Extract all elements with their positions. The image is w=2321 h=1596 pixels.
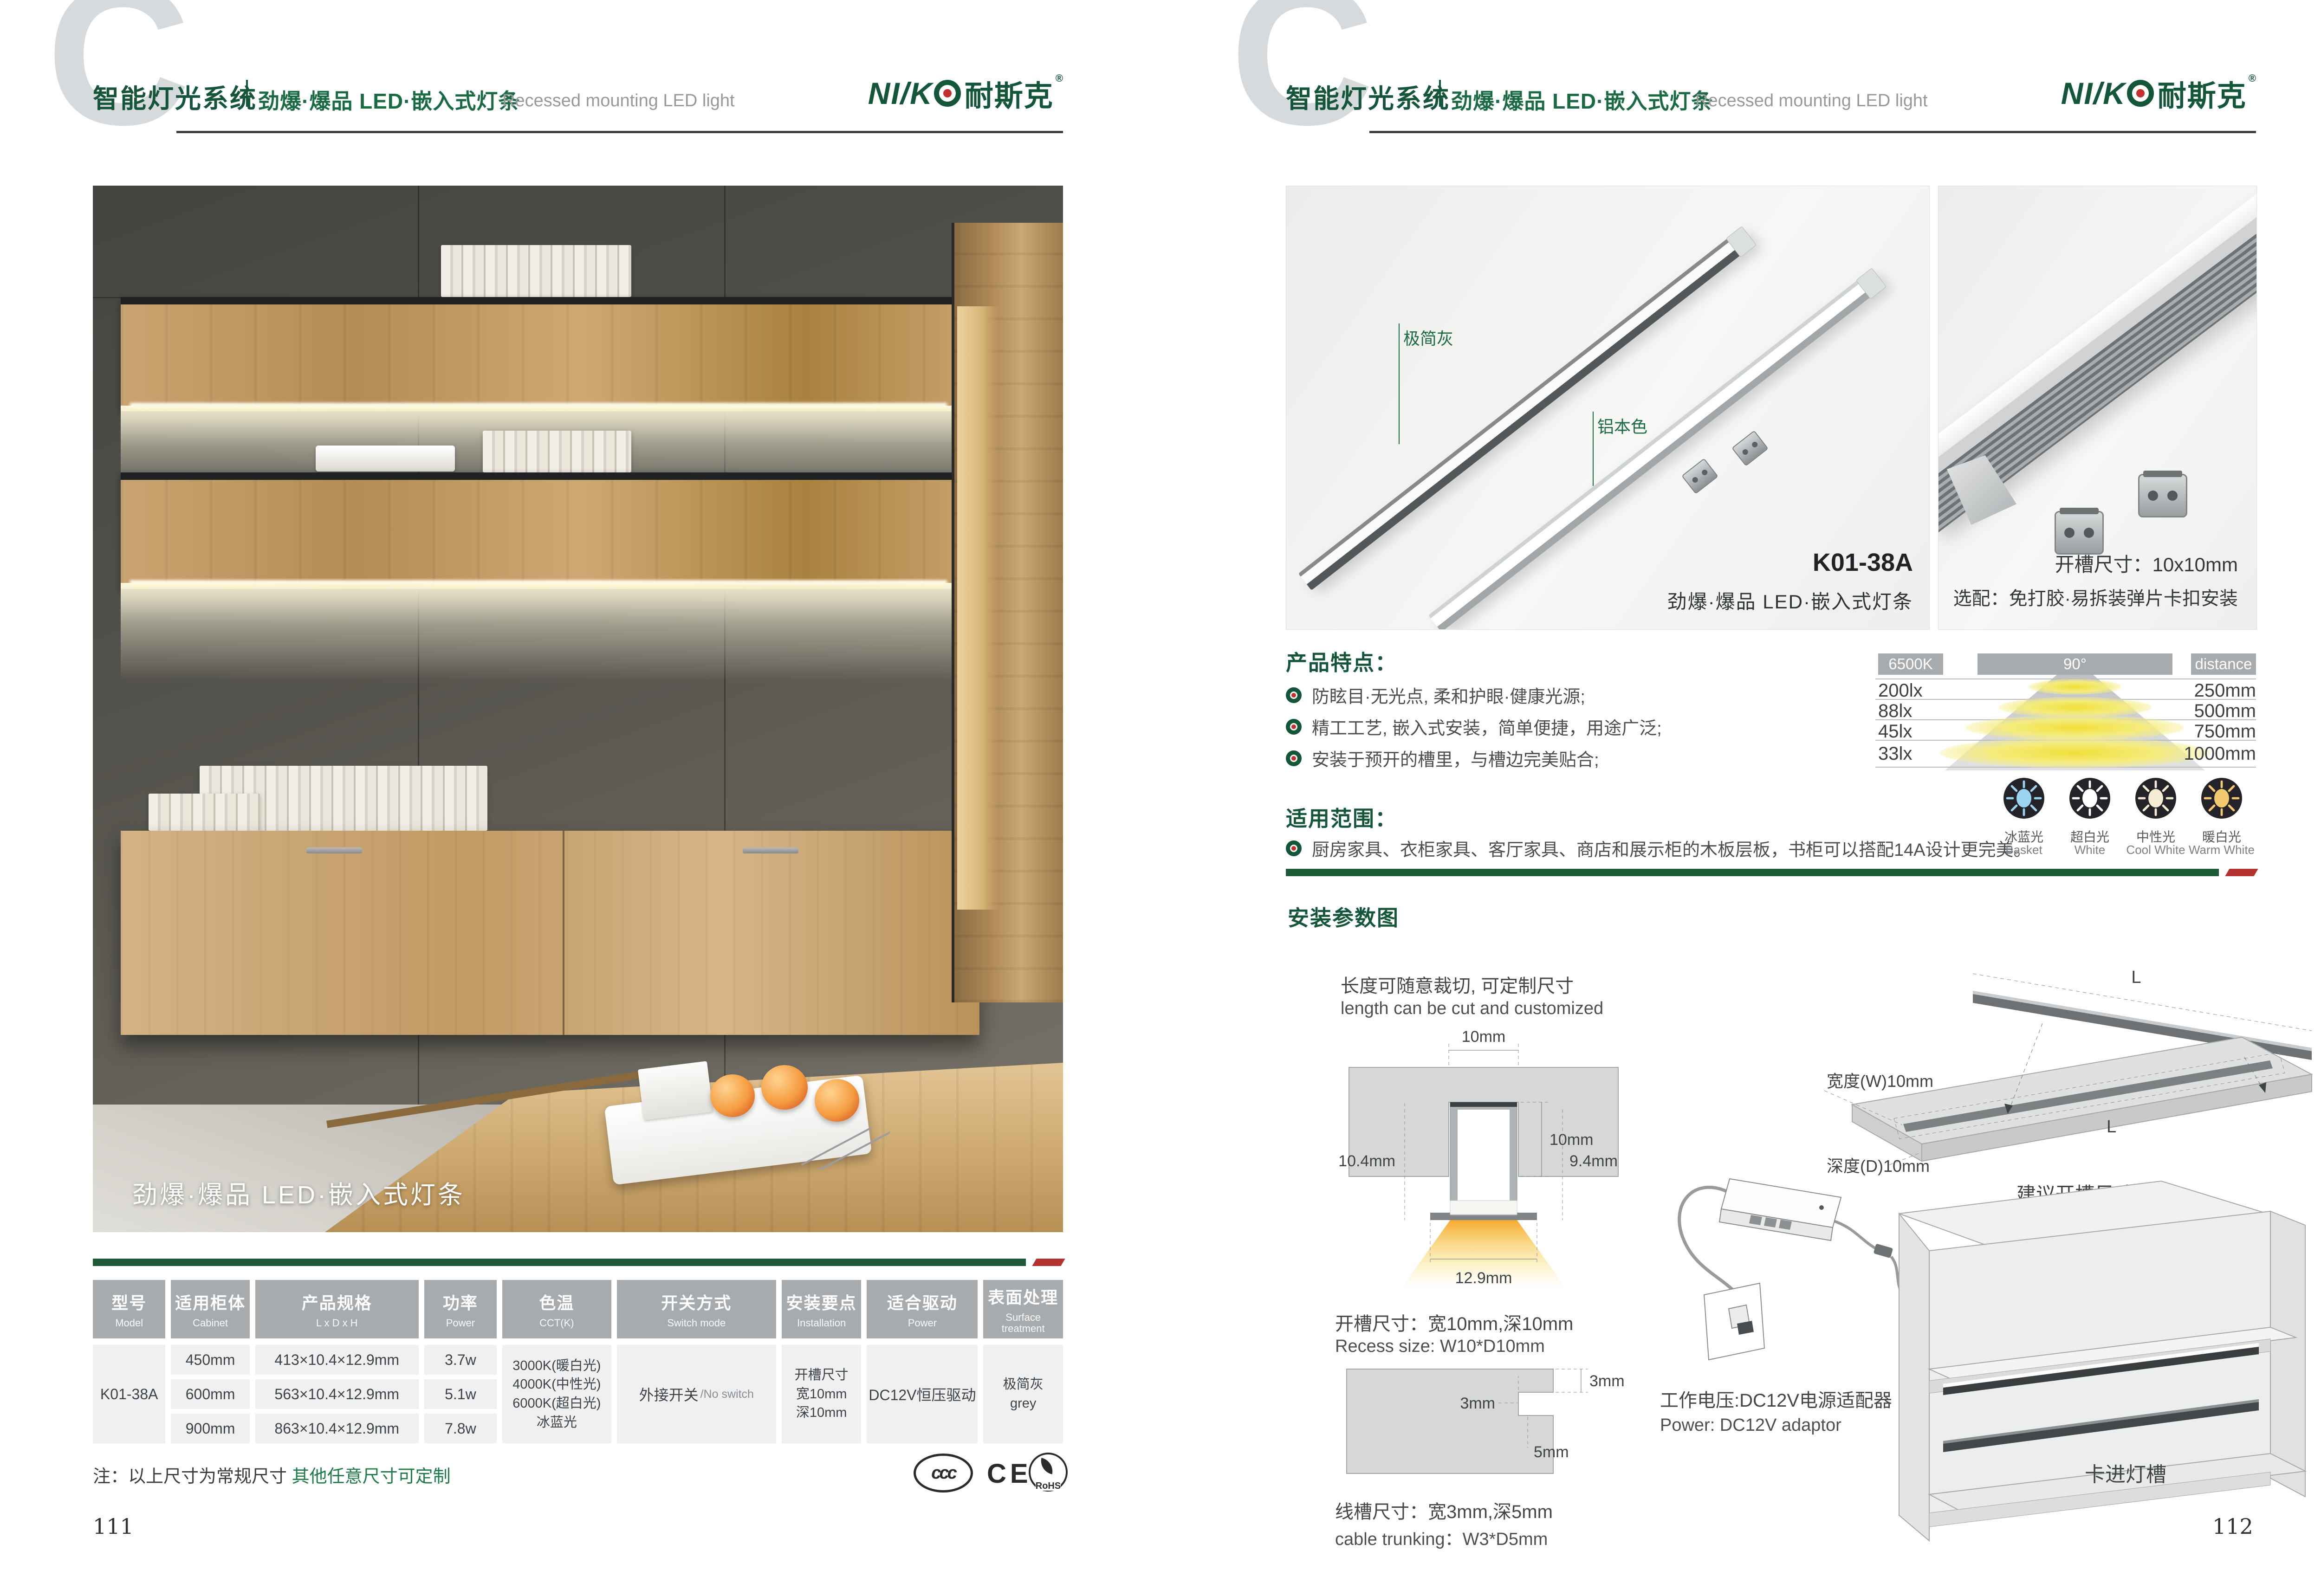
- clip-hole: [1751, 441, 1759, 449]
- swatch-warm-white: [2201, 778, 2242, 819]
- feature-item: 防眩目·无光点, 柔和护眼·健康光源;: [1286, 682, 1585, 708]
- mounting-clip-icon: [1681, 458, 1718, 494]
- surface-line: grey: [1010, 1394, 1036, 1413]
- bullet-dot: [1291, 724, 1296, 729]
- header-rule: [1369, 131, 2256, 133]
- drawer-handle: [743, 847, 798, 853]
- sideboard: [121, 831, 979, 1035]
- brand-logo: NI/K耐斯克®: [868, 72, 1063, 114]
- cell-driver: DC12V恒压驱动: [867, 1345, 978, 1443]
- photo2-line1: 开槽尺寸：10x10mm: [1978, 549, 2238, 577]
- cell-power: 3.7w: [424, 1345, 497, 1375]
- clip-hole: [2084, 528, 2094, 538]
- accent-bar-red: [2225, 869, 2258, 876]
- feature-text: 精工工艺, 嵌入式安装，简单便捷，用途广泛;: [1312, 714, 1662, 739]
- clip-hole: [1741, 448, 1749, 456]
- light-pool: [1966, 715, 2184, 740]
- col-sublabel: Power: [446, 1318, 475, 1329]
- clip-hole: [1701, 469, 1709, 477]
- cell-cabinet: 600mm: [171, 1379, 249, 1409]
- leaf-icon: [1038, 1458, 1055, 1474]
- clip-hole: [1691, 476, 1699, 484]
- photo2-line2: 选配：免打胶·易拆装弹片卡扣安装: [1938, 583, 2238, 610]
- photo1-caption: 劲爆·爆品 LED·嵌入式灯条: [1588, 586, 1913, 614]
- page-header: C 智能灯光系统 劲爆·爆品 LED·嵌入式灯条 Recessed mounti…: [0, 0, 1168, 139]
- power-stack: 3.7w 5.1w 7.8w: [424, 1345, 497, 1443]
- cct-line: 冰蓝光: [537, 1413, 577, 1432]
- dim-groove-length: L: [2107, 1117, 2116, 1137]
- logo-cn: 耐斯克: [2158, 72, 2247, 114]
- cabinet-glow: [957, 306, 999, 910]
- bullet-dot: [1291, 846, 1296, 851]
- cabinet-illustration: 卡进灯槽: [1874, 1170, 2315, 1550]
- cell-switch: 外接开关 /No switch: [617, 1345, 776, 1443]
- rohs-cert-icon: RoHS: [1029, 1453, 1068, 1492]
- distance-value: 1000mm: [2154, 743, 2256, 764]
- tall-cabinet: [952, 223, 1063, 1002]
- adaptor-illustration: [1660, 1142, 1901, 1374]
- col-sublabel: Installation: [797, 1318, 846, 1329]
- install-line: 深10mm: [796, 1403, 847, 1422]
- cct-line: 6000K(超白光): [512, 1394, 601, 1413]
- dim-top-width: 10mm: [1462, 1028, 1505, 1046]
- col-sublabel: Switch mode: [667, 1318, 726, 1329]
- dim-trunk-width: 3mm: [1460, 1395, 1495, 1412]
- cell-spec: 563×10.4×12.9mm: [255, 1379, 419, 1409]
- dim-left-height: 10.4mm: [1338, 1152, 1395, 1170]
- features-title: 产品特点：: [1286, 646, 1397, 677]
- peach: [815, 1079, 859, 1122]
- color-label-gray: 极简灰: [1403, 325, 1453, 349]
- drawer-handle: [306, 847, 362, 853]
- note-prefix: 注：以上尺寸为常规尺寸: [93, 1467, 292, 1486]
- install-line: 开槽尺寸: [795, 1366, 849, 1385]
- logo-cn: 耐斯克: [965, 72, 1054, 114]
- page-title-cn: 智能灯光系统: [1286, 78, 1450, 116]
- feature-text: 防眩目·无光点, 柔和护眼·健康光源;: [1312, 682, 1585, 708]
- clip-hole: [2167, 491, 2178, 501]
- bullet-dot: [1291, 756, 1296, 761]
- col-label: 适用柜体: [175, 1290, 246, 1314]
- feature-text: 安装于预开的槽里，与槽边完美贴合;: [1312, 745, 1599, 771]
- drawer-divider: [563, 831, 564, 1035]
- series-title-en: Recessed mounting LED light: [1695, 91, 1928, 111]
- clip-hole: [2148, 491, 2158, 501]
- col-cabinet: 适用柜体Cabinet: [171, 1280, 249, 1338]
- mounting-clip-icon: [2055, 511, 2104, 555]
- rohs-label: RoHS: [1036, 1481, 1061, 1491]
- cable-trunking-diagram: 3mm 3mm 5mm: [1335, 1362, 1632, 1478]
- model-code: K01-38A: [1634, 548, 1913, 577]
- cell-install: 开槽尺寸 宽10mm 深10mm: [782, 1345, 862, 1443]
- light-pool: [2029, 679, 2121, 695]
- page-header: C 智能灯光系统 劲爆·爆品 LED·嵌入式灯条 Recessed mounti…: [1168, 0, 2321, 139]
- col-surface: 表面处理Surface treatment: [983, 1280, 1063, 1338]
- spec-stack: 413×10.4×12.9mm 563×10.4×12.9mm 863×10.4…: [255, 1345, 419, 1443]
- col-cct: 色温CCT(K): [502, 1280, 611, 1338]
- recess-note-en: Recess size: W10*D10mm: [1335, 1337, 1545, 1357]
- cell-spec: 863×10.4×12.9mm: [255, 1414, 419, 1443]
- trunk-note-cn: 线槽尺寸：宽3mm,深5mm: [1335, 1497, 1553, 1524]
- feature-item: 安装于预开的槽里，与槽边完美贴合;: [1286, 745, 1599, 771]
- dim-right-height: 9.4mm: [1569, 1152, 1618, 1170]
- dim-board-width: 宽度(W)10mm: [1827, 1072, 1933, 1091]
- col-install: 安装要点Installation: [782, 1280, 862, 1338]
- switch-en: /No switch: [700, 1388, 754, 1401]
- page-number: 111: [93, 1514, 134, 1539]
- cut-note-cn: 长度可随意裁切, 可定制尺寸: [1341, 971, 1574, 998]
- mounting-clip-icon: [2138, 474, 2187, 517]
- feature-item: 精工工艺, 嵌入式安装，简单便捷，用途广泛;: [1286, 714, 1662, 739]
- ce-cert-icon: CE: [987, 1458, 1032, 1489]
- note-highlight: 其他任意尺寸可定制: [292, 1467, 451, 1486]
- dim-depth: 10mm: [1549, 1131, 1593, 1149]
- product-photo-profile: 开槽尺寸：10x10mm 选配：免打胶·易拆装弹片卡扣安装: [1938, 186, 2257, 630]
- col-sublabel: CCT(K): [539, 1318, 574, 1329]
- cross-section-diagram: 10mm 10mm 9.9mm 10.4mm 9.4mm 12.9mm: [1335, 1023, 1632, 1297]
- ce-label: CE: [987, 1459, 1032, 1489]
- cabinet-stack: 450mm 600mm 900mm: [171, 1345, 249, 1443]
- cut-note-en: length can be cut and customized: [1341, 999, 1603, 1019]
- cct-line: 4000K(中性光): [512, 1375, 601, 1394]
- col-sublabel: Power: [908, 1318, 937, 1329]
- logo-reg-mark: ®: [2249, 72, 2256, 84]
- books: [483, 431, 631, 472]
- mounting-clip-icon: [1731, 430, 1769, 466]
- col-sublabel: Cabinet: [193, 1318, 228, 1329]
- tray: [316, 446, 455, 472]
- col-driver: 适合驱动Power: [867, 1280, 978, 1338]
- accent-bar-red: [1032, 1259, 1065, 1266]
- table-body: K01-38A 450mm 600mm 900mm 413×10.4×12.9m…: [93, 1345, 1063, 1443]
- led-glow: [121, 583, 956, 699]
- bullet-icon: [1286, 687, 1302, 703]
- beam-angle-header: 90°: [1977, 653, 2172, 675]
- catalog-spread: C 智能灯光系统 劲爆·爆品 LED·嵌入式灯条 Recessed mounti…: [0, 0, 2321, 1596]
- col-label: 功率: [443, 1290, 478, 1314]
- accent-bar-green: [1286, 869, 2219, 876]
- lux-value: 200lx: [1878, 680, 1923, 701]
- series-title-en: Recessed mounting LED light: [502, 91, 735, 111]
- distance-value: 750mm: [2154, 721, 2256, 742]
- distance-value: 500mm: [2154, 701, 2256, 722]
- swatch-white: [2069, 778, 2110, 819]
- install-line: 宽10mm: [796, 1385, 847, 1404]
- distance-value: 250mm: [2154, 680, 2256, 701]
- spec-table: 型号Model 适用柜体Cabinet 产品规格L x D x H 功率Powe…: [93, 1280, 1063, 1443]
- bullet-dot: [1291, 693, 1296, 698]
- col-label: 表面处理: [988, 1284, 1058, 1308]
- section-watermark: C: [46, 0, 191, 155]
- logo-wordmark: NI/K: [2061, 76, 2126, 111]
- logo-wordmark: NI/K: [868, 76, 933, 111]
- cell-power: 5.1w: [424, 1379, 497, 1409]
- install-title: 安装参数图: [1288, 901, 1399, 932]
- power-note-cn: 工作电压:DC12V电源适配器: [1660, 1385, 1892, 1412]
- dim-trunk-depth: 5mm: [1534, 1443, 1569, 1461]
- page-left: C 智能灯光系统 劲爆·爆品 LED·嵌入式灯条 Recessed mounti…: [0, 0, 1168, 1596]
- lux-value: 88lx: [1878, 701, 1912, 722]
- cell-power: 7.8w: [424, 1414, 497, 1443]
- dim-bottom-width: 12.9mm: [1455, 1269, 1512, 1287]
- leader-line: [1593, 412, 1594, 486]
- header-rule: [176, 131, 1063, 133]
- table-header-row: 型号Model 适用柜体Cabinet 产品规格L x D x H 功率Powe…: [93, 1280, 1063, 1338]
- floating-shelf: [121, 297, 956, 411]
- header-divider: [1439, 80, 1441, 107]
- napkin: [638, 1061, 713, 1120]
- cell-cabinet: 900mm: [171, 1414, 249, 1443]
- swatch-ice-blue: [2003, 778, 2044, 819]
- swatch-sublabel: Warm White: [2180, 843, 2263, 857]
- col-power: 功率Power: [424, 1280, 497, 1338]
- books: [149, 794, 260, 831]
- logo-o-icon: [934, 80, 961, 107]
- logo-reg-mark: ®: [1056, 72, 1063, 84]
- page-right: C 智能灯光系统 劲爆·爆品 LED·嵌入式灯条 Recessed mounti…: [1168, 0, 2321, 1596]
- lifestyle-photo: 劲爆·爆品 LED·嵌入式灯条: [93, 186, 1063, 1232]
- ccc-cert-icon: ccc: [914, 1454, 973, 1493]
- col-model: 型号Model: [93, 1280, 165, 1338]
- light-pool: [1998, 697, 2152, 717]
- trunk-note-en: cable trunking：W3*D5mm: [1335, 1525, 1548, 1550]
- cell-cct: 3000K(暖白光) 4000K(中性光) 6000K(超白光) 冰蓝光: [502, 1345, 611, 1443]
- cell-model: K01-38A: [93, 1345, 165, 1443]
- col-label: 安装要点: [786, 1290, 857, 1314]
- page-number: 112: [2212, 1514, 2253, 1539]
- ccc-label: ccc: [931, 1463, 955, 1483]
- color-label-aluminum: 铝本色: [1597, 414, 1647, 438]
- logo-dot-icon: [2136, 89, 2145, 97]
- col-sublabel: Surface treatment: [983, 1312, 1063, 1334]
- books: [441, 245, 631, 297]
- distance-header: distance: [2191, 653, 2256, 675]
- col-sublabel: L x D x H: [316, 1318, 358, 1329]
- peach: [761, 1065, 808, 1110]
- section-watermark: C: [1230, 0, 1374, 155]
- col-sublabel: Model: [115, 1318, 143, 1329]
- clip-groove-label: 卡进灯槽: [2085, 1463, 2166, 1486]
- col-label: 适合驱动: [887, 1290, 958, 1314]
- accent-bar-green: [93, 1259, 1026, 1266]
- bullet-icon: [1286, 840, 1302, 856]
- product-photo-strips: 极简灰 铝本色 K01-38A 劲爆·爆品 LED·嵌入式灯条: [1286, 186, 1930, 630]
- cell-surface: 极简灰 grey: [983, 1345, 1063, 1443]
- col-label: 型号: [111, 1290, 147, 1314]
- scope-text: 厨房家具、衣柜家具、客厅家具、商店和展示柜的木板层板，书柜可以搭配14A设计更完…: [1312, 835, 2031, 861]
- col-label: 开关方式: [661, 1290, 732, 1314]
- bullet-icon: [1286, 750, 1302, 766]
- peach: [710, 1074, 755, 1117]
- dim-trunk-height: 3mm: [1589, 1372, 1625, 1390]
- logo-o-icon: [2127, 80, 2154, 107]
- table-note: 注：以上尺寸为常规尺寸 其他任意尺寸可定制: [93, 1462, 451, 1487]
- col-label: 色温: [539, 1290, 574, 1314]
- power-note-en: Power: DC12V adaptor: [1660, 1415, 1841, 1435]
- page-title-cn: 智能灯光系统: [93, 78, 257, 116]
- cct-line: 3000K(暖白光): [512, 1357, 601, 1376]
- led-strip-gray: [1298, 228, 1754, 590]
- col-switch: 开关方式Switch mode: [617, 1280, 776, 1338]
- cell-cabinet: 450mm: [171, 1345, 249, 1375]
- cell-spec: 413×10.4×12.9mm: [255, 1345, 419, 1375]
- col-label: 产品规格: [302, 1290, 372, 1314]
- cct-header: 6500K: [1878, 653, 1943, 675]
- leader-line: [1399, 323, 1400, 444]
- scope-title: 适用范围：: [1286, 802, 1397, 833]
- swatch-cool-white: [2135, 778, 2176, 819]
- recess-note-cn: 开槽尺寸：宽10mm,深10mm: [1335, 1309, 1573, 1336]
- col-spec: 产品规格L x D x H: [255, 1280, 419, 1338]
- clip-hole: [2064, 528, 2075, 538]
- surface-line: 极简灰: [1003, 1375, 1044, 1394]
- floating-shelf: [121, 472, 956, 589]
- photo-caption: 劲爆·爆品 LED·嵌入式灯条: [132, 1174, 465, 1211]
- series-title: 劲爆·爆品 LED·嵌入式灯条: [1451, 84, 1713, 115]
- switch-cn: 外接开关: [639, 1383, 699, 1405]
- brand-logo: NI/K耐斯克®: [2061, 72, 2256, 114]
- dim-strip-length: L: [2131, 968, 2141, 987]
- series-title: 劲爆·爆品 LED·嵌入式灯条: [258, 84, 520, 115]
- lux-value: 33lx: [1878, 743, 1912, 764]
- lux-value: 45lx: [1878, 721, 1912, 742]
- logo-dot-icon: [943, 89, 952, 97]
- bullet-icon: [1286, 719, 1302, 735]
- header-divider: [246, 80, 248, 107]
